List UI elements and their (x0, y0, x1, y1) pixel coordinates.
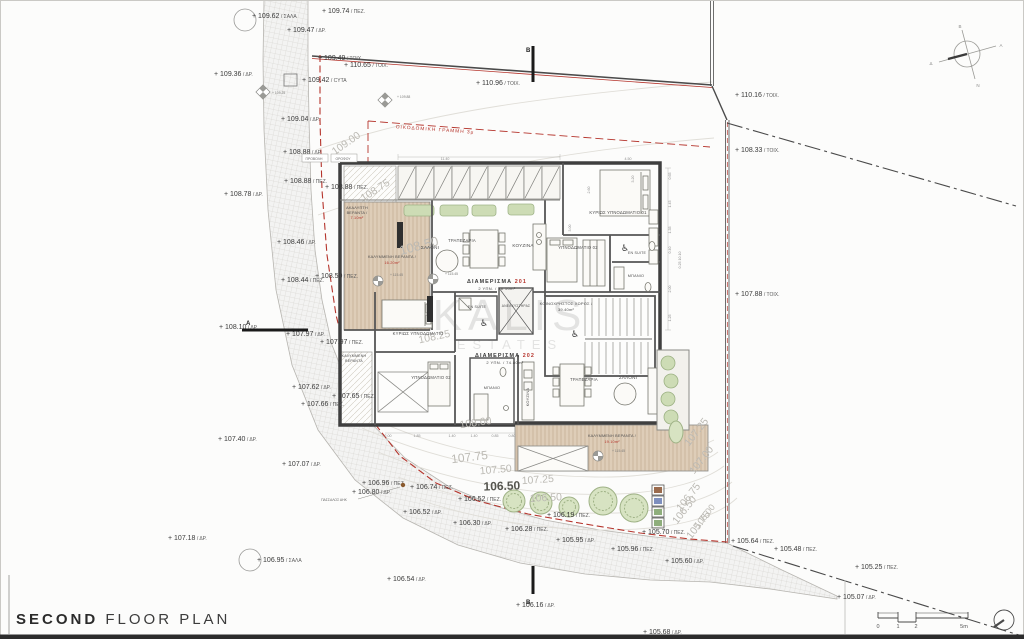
contour-label: 106.50 (483, 478, 520, 493)
elevation-marker: + 108.46 / ΔΡ. (277, 239, 316, 246)
contour-label: 109.00 (330, 129, 363, 157)
dimension-label: 0.40 (668, 247, 672, 254)
dimension-label: 3.20 (631, 176, 635, 183)
scalebar-label: 1 (896, 624, 899, 630)
room-label: ΜΠΑΝΙΟ (628, 274, 644, 278)
elevation-marker: + 105.60 / ΔΡ. (665, 558, 704, 565)
elevation-marker: + 108.78 / ΔΡ. (224, 191, 263, 198)
elevation-marker: + 108.50 / ΠΕΖ. (315, 273, 358, 280)
orientation-circle-icon (994, 610, 1014, 630)
scalebar-label: 5m (960, 624, 968, 630)
spot-level: + 115.45 (390, 273, 403, 277)
apartment-sublabel: 2 ΥΠΝ. / 76.10m² (478, 286, 515, 291)
room-label: EN SUITE (628, 251, 647, 255)
elevation-marker: + 107.18 / ΔΡ. (168, 535, 207, 542)
sofa-202 (648, 368, 657, 414)
elevation-marker: + 109.47 / ΔΡ. (287, 27, 326, 34)
scalebar-label: 0 (876, 624, 879, 630)
section-label: B (526, 48, 531, 54)
dining-table-202 (560, 364, 584, 406)
elevation-marker: + 105.25 / ΠΕΖ. (855, 564, 898, 571)
room-label: ΚΑΛΥΜΜΕΝΗ ΒΕΡΑΝΤΑ / (588, 434, 637, 438)
elevation-marker: + 108.88 / ΠΕΖ. (325, 184, 368, 191)
elevation-marker: + 107.97 / ΠΕΖ. (320, 339, 363, 346)
dimension-label: 4.50 (625, 157, 632, 161)
elevation-marker: + 110.16 / ΤΟΙΧ. (735, 92, 779, 99)
dimension-label: 1.45 (668, 201, 672, 208)
dimension-label: 1.35 (668, 227, 672, 234)
room-label: 39.40m² (558, 307, 575, 312)
elevation-marker: + 105.64 / ΠΕΖ. (731, 538, 774, 545)
elevation-marker: + 108.33 / ΤΟΙΧ. (735, 147, 780, 154)
floor-plan-sheet: ♿ ♿ ♿ KALIS ESTATES + 109.62 / ΣΑΛΑ+ 109… (0, 0, 1024, 639)
room-label: ΣΑΛΟΝΙ (421, 245, 439, 250)
elevation-marker: + 110.96 / ΤΟΙΧ. (476, 80, 520, 87)
elevation-marker: + 109.49 / ΤΟΙΧ. (318, 55, 363, 62)
spot-level: + 109.88 (397, 95, 410, 99)
garden-strip (657, 350, 689, 430)
room-label: ΑΝΕΛΚΥΣΤΗΡΑΣ (502, 304, 530, 308)
elevation-marker: + 105.48 / ΠΕΖ. (774, 546, 817, 553)
elevation-marker: + 106.95 / ΣΑΛΑ (257, 557, 302, 564)
elevation-marker: + 105.95 / ΔΡ. (556, 537, 595, 544)
room-label: 19.10m² (604, 440, 620, 444)
contour-label: 107.50 (479, 463, 512, 478)
room-label: ΚΟΥΖΙΝΑ (512, 243, 534, 248)
elevation-marker: + 109.62 / ΣΑΛΑ (252, 13, 297, 20)
elevation-marker: + 105.70 / ΠΕΖ. (642, 529, 685, 536)
kitchen-counter-201 (533, 224, 546, 270)
dimension-label: 0.65 (668, 173, 672, 180)
elevation-marker: + 109.42 / CYTA (302, 77, 347, 84)
projection-label: ΠΡΟΒΟΛΗ (306, 157, 323, 161)
plan-drawing: ♿ ♿ ♿ KALIS ESTATES + 109.62 / ΣΑΛΑ+ 109… (0, 0, 1024, 639)
elevation-marker: + 105.96 / ΠΕΖ. (611, 546, 654, 553)
elevation-marker: + 105.68 / ΔΡ. (643, 629, 682, 636)
room-label: ΣΑΛΟΝΙ (619, 375, 637, 380)
pole-label: ΠΑΣΣΑΛΟΣ ΑΗΚ (321, 498, 348, 502)
elevation-marker: + 109.36 / ΔΡ. (214, 71, 253, 78)
dimension-label: 1.40 (449, 434, 456, 438)
room-label: ΚΟΙΝΟΧΡΗΣΤΟΣ ΧΩΡΟΣ / (540, 301, 593, 306)
room-label: ΒΕΡΑΝΤΑ / (347, 211, 369, 215)
dimension-label: 1.40 (471, 434, 478, 438)
elevation-marker: + 105.07 / ΔΡ. (837, 594, 876, 601)
elevation-marker: + 106.19 / ΠΕΖ. (547, 512, 590, 519)
elevation-marker: + 107.88 / ΤΟΙΧ. (735, 291, 780, 298)
compass-letter: Δ (929, 61, 932, 66)
elevation-marker: + 108.88 / ΠΕΖ. (284, 178, 327, 185)
contour-label: 106.50 (529, 491, 562, 505)
elevation-marker: + 107.65 / ΠΕΖ. (332, 393, 375, 400)
elevation-marker: + 107.40 / ΔΡ. (218, 436, 257, 443)
scale-bar (878, 612, 968, 622)
dimension-label: 2.00 (668, 286, 672, 293)
contour-label: 107.25 (521, 473, 554, 487)
sheet-title-light: FLOOR PLAN (98, 611, 230, 628)
elevation-marker: + 106.30 / ΔΡ. (453, 520, 492, 527)
elevation-marker: + 106.74 / ΠΕΖ. (410, 484, 453, 491)
sheet-title: SECOND FLOOR PLAN (16, 611, 230, 628)
room-label: ΒΕΡΑΝΤΑ (345, 359, 363, 363)
watermark-line2: ESTATES (457, 337, 563, 352)
room-label: EN SUITE (468, 305, 487, 309)
spot-level: + 109.25 (272, 91, 285, 95)
compass-letter: Β (958, 24, 961, 29)
legend-swatch (654, 498, 662, 504)
legend-swatch (654, 487, 662, 493)
elevation-marker: + 106.54 / ΔΡ. (387, 576, 426, 583)
elevation-marker: + 107.97 / ΔΡ. (286, 331, 325, 338)
dimension-label: 0.80 (509, 434, 516, 438)
louver-strip (398, 166, 560, 199)
dimension-label: 2.60 (587, 187, 591, 194)
room-label: 7.10m² (350, 216, 364, 220)
elevation-marker: + 106.28 / ΠΕΖ. (505, 526, 548, 533)
room-label: ΚΥΡΙΩΣ ΥΠΝΟΔΩΜΑΤΙΟ 01 (589, 210, 647, 215)
projection-label: ΟΡΟΦΟΥ (335, 157, 351, 161)
room-label: ΥΠΝΟΔΩΜΑΤΙΟ 02 (411, 375, 451, 380)
dimension-label: 1.25 (668, 315, 672, 322)
bathtub-201 (614, 267, 624, 289)
coffee-table-202 (614, 383, 636, 405)
contour-label: 107.75 (450, 448, 488, 466)
elevation-marker: + 106.52 / ΔΡ. (403, 509, 442, 516)
watermark-line1: KALIS (433, 291, 588, 340)
legend (652, 485, 664, 528)
room-label: ΤΡΑΠΕΖΑΡΙΑ (570, 377, 598, 382)
elevation-marker: + 110.65 / ΤΟΙΧ. (344, 62, 388, 69)
room-label: ΥΠΝΟΔΩΜΑΤΙΟ 02 (558, 245, 598, 250)
elevation-marker: + 107.07 / ΔΡ. (282, 461, 321, 468)
room-label: ΚΥΡΙΩΣ ΥΠΝΟΔΩΜΑΤΙΟ (393, 331, 444, 336)
bed-master-202 (382, 300, 432, 328)
pole-dot (401, 483, 405, 487)
elevation-marker: + 106.96 / ΠΕΖ. (362, 480, 405, 487)
elevation-marker: + 109.74 / ΠΕΖ. (322, 8, 365, 15)
dimension-label: 11.40 (441, 157, 450, 161)
room-label: ΚΟΥΖΙΝΑ (525, 388, 530, 407)
apartment-label: ΔΙΑΜΕΡΙΣΜΑ 202 (475, 353, 535, 359)
elevation-marker: + 106.16 / ΔΡ. (516, 602, 555, 609)
legend-swatch (654, 509, 662, 515)
room-label: ΑΚΑΛΥΠΤΗ (346, 206, 368, 210)
room-label: ΤΡΑΠΕΖΑΡΙΑ (448, 238, 476, 243)
room-label: ΜΠΑΝΙΟ (484, 386, 500, 390)
elevation-marker: + 107.66 / ΠΕΖ. (301, 401, 344, 408)
legend-swatch (654, 520, 662, 526)
north-compass-icon (939, 30, 996, 79)
dimension-label: 0.25 10.10 (678, 252, 682, 269)
spot-level: + 115.45 (612, 449, 625, 453)
scalebar-label: 2 (914, 624, 917, 630)
elevation-marker: + 107.62 / ΔΡ. (292, 384, 331, 391)
room-label: 16.20m² (384, 261, 400, 265)
section-label: A (246, 321, 251, 327)
sheet-title-bold: SECOND (16, 611, 98, 628)
dimension-label: 3.00 (568, 225, 572, 232)
compass-letter: Α (999, 43, 1002, 48)
apartment-sublabel: 2 ΥΠΝ. / 74.80m² (486, 360, 523, 365)
apartment-label: ΔΙΑΜΕΡΙΣΜΑ 201 (467, 279, 527, 285)
compass-letter: Ν (976, 83, 979, 88)
coffee-table-201 (436, 250, 458, 272)
dimension-label: 1.85 (414, 434, 421, 438)
elevation-marker: + 109.04 / ΔΡ. (281, 116, 320, 123)
dimension-label: 2.00 (385, 434, 392, 438)
room-label: ΚΑΛΥΜΜΕΝΗ (342, 354, 367, 358)
dimension-label: 0.85 (492, 434, 499, 438)
room-label: ΚΑΛΥΜΜΕΝΗ ΒΕΡΑΝΤΑ / (368, 255, 417, 259)
spot-level: + 115.45 (445, 272, 458, 276)
section-label: B (526, 600, 531, 606)
elevation-marker: + 106.52 / ΠΕΖ. (458, 496, 501, 503)
dining-table-201 (470, 230, 498, 268)
